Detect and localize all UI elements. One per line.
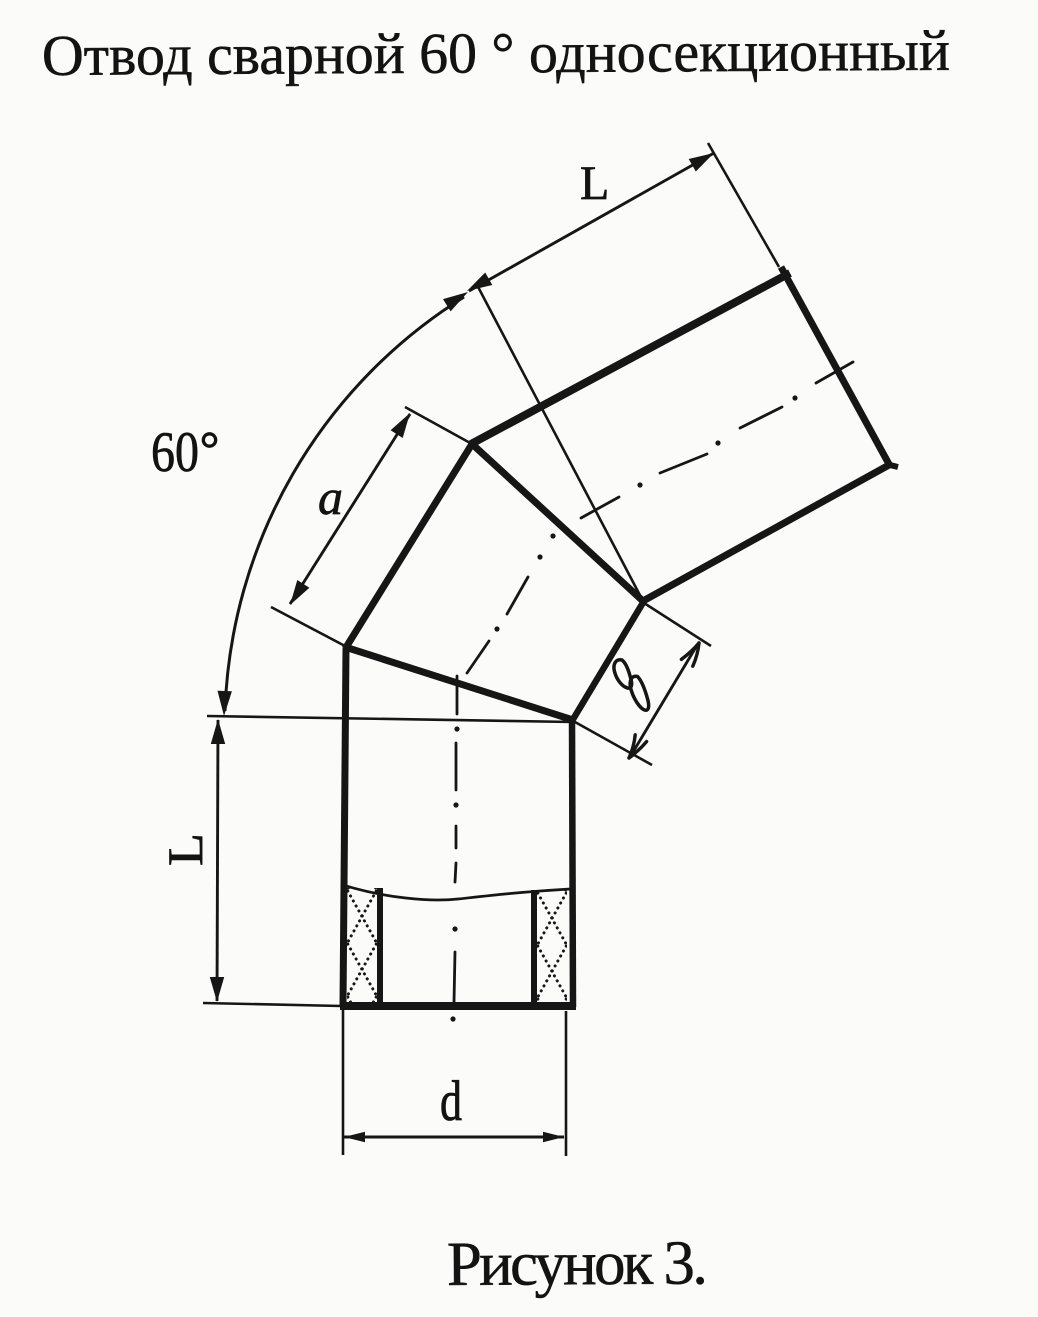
svg-text:L: L [157, 833, 213, 866]
svg-text:60: 60 [151, 421, 199, 484]
svg-text:Отвод сварной 60 ° односекцион: Отвод сварной 60 ° односекционный [42, 18, 950, 88]
svg-text:L: L [580, 157, 609, 210]
svg-text:Рисунок 3.: Рисунок 3. [447, 1227, 708, 1299]
svg-text:a: a [318, 469, 343, 525]
svg-text:d: d [440, 1070, 462, 1133]
